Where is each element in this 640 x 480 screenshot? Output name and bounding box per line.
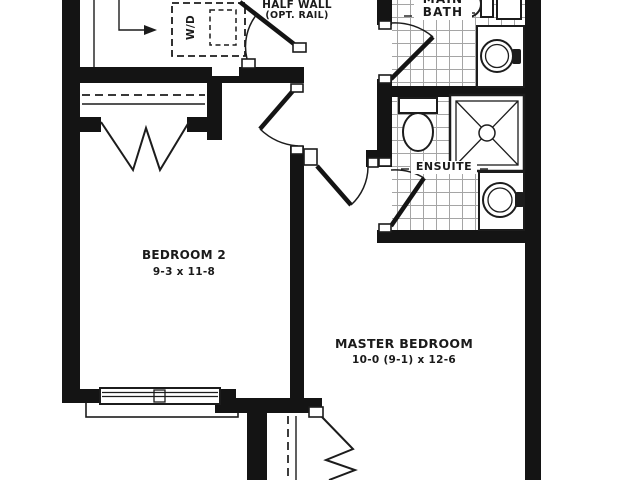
ensuite-faucet	[515, 192, 524, 207]
half-wall-note: HALF WALL (OPT. RAIL)	[251, 0, 343, 22]
bedroom2-window	[100, 388, 220, 404]
ensuite-door-swing	[391, 170, 424, 226]
master-closet	[288, 416, 355, 480]
bedroom2-door-swing	[260, 85, 298, 146]
shower-drain	[479, 125, 495, 141]
bedroom2-closet	[82, 95, 205, 170]
main-bath-toilet-tank	[481, 0, 493, 17]
master-bedroom-label: MASTER BEDROOM 10-0 (9-1) x 12-6	[314, 337, 494, 366]
stairwell	[94, 0, 157, 67]
plan-linework	[0, 0, 640, 480]
room-dimensions: 9-3 x 11-8	[124, 266, 244, 278]
room-name: MASTER BEDROOM	[314, 337, 494, 351]
stair-direction-arrow	[119, 0, 144, 30]
ensuite-toilet-bowl	[403, 113, 433, 151]
ensuite-label: ENSUITE	[411, 161, 477, 174]
stair-arrow-head	[144, 25, 157, 35]
bedroom2-label: BEDROOM 2 9-3 x 11-8	[124, 249, 244, 278]
room-dimensions: 10-0 (9-1) x 12-6	[314, 354, 494, 366]
master-closet-bifold-doors	[322, 417, 355, 480]
bedroom2-closet-bifold-doors	[101, 122, 189, 170]
master-bedroom-door-swing	[317, 166, 368, 205]
room-name: BEDROOM 2	[124, 249, 244, 263]
ensuite-toilet-tank	[399, 98, 437, 113]
main-bath-door-swing	[391, 23, 433, 79]
floor-plan: BEDROOM 2 9-3 x 11-8 MASTER BEDROOM 10-0…	[0, 0, 640, 480]
main-bath-label-line2: BATH	[414, 6, 472, 20]
main-bath-faucet	[512, 49, 521, 64]
main-bath-cabinet	[497, 0, 521, 19]
washer-dryer-label: W/D	[179, 16, 203, 40]
